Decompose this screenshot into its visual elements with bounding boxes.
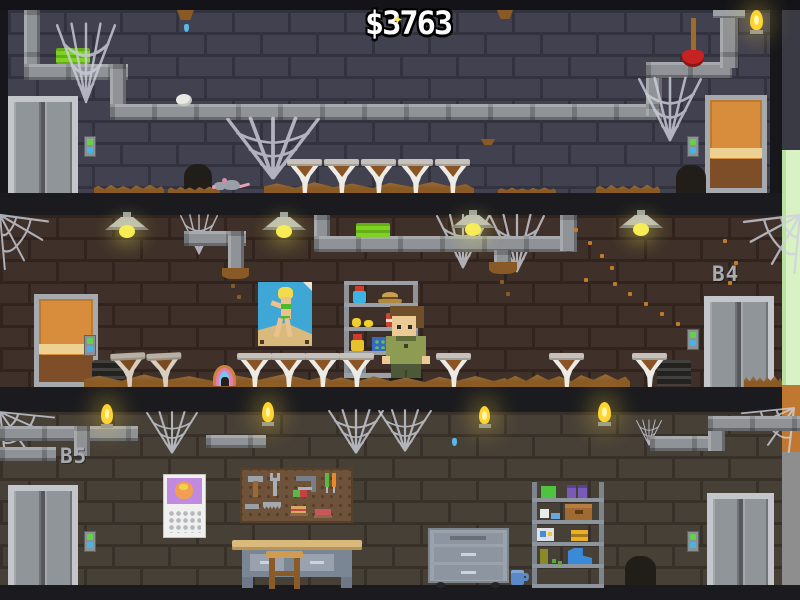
funnel-planter[interactable]: [324, 157, 359, 193]
sawdust-speck: [644, 302, 648, 306]
pipe-vertical: [24, 10, 40, 70]
spider-web: [0, 215, 48, 269]
elevator-door[interactable]: [8, 96, 78, 193]
funnel-planter[interactable]: [339, 351, 374, 387]
door-button[interactable]: [84, 335, 96, 356]
sawdust-speck: [613, 282, 617, 286]
sawdust-speck: [628, 292, 632, 296]
pipe-vertical: [720, 10, 738, 68]
dirt-clump: [177, 10, 194, 20]
floor-label-b4: B4: [712, 262, 739, 286]
spider-web: [744, 215, 800, 273]
elevator-call-button[interactable]: [687, 329, 699, 350]
elevator-call-button[interactable]: [84, 531, 96, 552]
ceiling-lamp: [619, 210, 663, 238]
pipe-horizontal: [708, 416, 800, 431]
sawdust-speck: [600, 254, 604, 258]
dirt-pile: [94, 184, 164, 193]
water-drip: [452, 438, 457, 446]
funnel-planter[interactable]: [271, 351, 306, 387]
floor-label-b5: B5: [60, 444, 87, 468]
debris-speck: [506, 292, 510, 296]
pipe-horizontal: [314, 236, 577, 252]
sawdust-speck: [574, 228, 578, 232]
ceiling-lamp: [451, 210, 495, 238]
funnel-planter[interactable]: [305, 351, 340, 387]
wall-torch-flame: [260, 402, 276, 426]
funnel-planter[interactable]: [632, 351, 667, 387]
spider-web: [328, 410, 384, 454]
rat[interactable]: [212, 176, 250, 193]
dirt-clump: [497, 10, 513, 19]
spider-web: [146, 412, 198, 454]
funnel-planter[interactable]: [287, 157, 322, 193]
water-drip: [184, 24, 189, 32]
wooden-door[interactable]: [705, 95, 767, 193]
elevator-door[interactable]: [704, 296, 774, 387]
funnel-planter[interactable]: [361, 157, 396, 193]
elevator-door[interactable]: [8, 485, 78, 585]
elevator-door[interactable]: [707, 493, 774, 585]
spider-web: [378, 410, 432, 452]
sawdust-speck: [588, 241, 592, 245]
pipe-leak: [222, 268, 249, 279]
spider-web: [56, 24, 116, 104]
funnel-planter-dirty[interactable]: [146, 350, 183, 388]
funnel-planter[interactable]: [549, 351, 584, 387]
funnel-planter[interactable]: [435, 157, 470, 193]
pipe-horizontal: [110, 104, 662, 120]
floor-hole: [625, 556, 656, 585]
mouse-hole: [676, 165, 706, 193]
spider-web: [638, 78, 702, 142]
mug: [511, 570, 529, 585]
dirt-pile: [596, 184, 660, 193]
funnel-planter-dirty[interactable]: [110, 350, 147, 388]
funnel-planter[interactable]: [398, 157, 433, 193]
sawdust-speck: [610, 266, 614, 270]
wall-torch-flame: [596, 402, 613, 426]
elevator-call-button[interactable]: [687, 531, 699, 552]
dirt-clump: [481, 139, 495, 145]
ceiling-lamp: [262, 212, 306, 240]
sawdust-speck: [584, 278, 588, 282]
sawdust-speck: [660, 312, 664, 316]
debris-speck: [237, 295, 241, 299]
pipe-vertical: [560, 215, 577, 251]
spider-egg: [176, 94, 192, 106]
pipe-horizontal: [206, 435, 266, 448]
pipe-vertical: [228, 231, 244, 271]
ceiling-lamp: [105, 212, 149, 240]
pipe-horizontal: [0, 426, 138, 441]
elevator-call-button[interactable]: [84, 136, 96, 157]
green-slime-block[interactable]: [356, 223, 390, 237]
pipe-flange: [713, 10, 745, 18]
debris-speck: [500, 280, 504, 284]
wall-torch-flame: [99, 404, 115, 428]
pipe-horizontal: [0, 447, 56, 461]
debris-speck: [231, 284, 235, 288]
plunger[interactable]: [682, 18, 704, 67]
wall-torch-flame: [748, 10, 765, 34]
door-button[interactable]: [687, 136, 699, 157]
scene-objects-layer: [0, 0, 800, 600]
funnel-planter[interactable]: [237, 351, 272, 387]
sawdust-speck: [723, 239, 727, 243]
game-viewport: B4 B5 $3763: [0, 0, 800, 600]
wall-torch-flame: [477, 406, 492, 428]
money-counter: $3763: [348, 4, 468, 42]
pipe-leak: [489, 262, 517, 274]
funnel-planter[interactable]: [436, 351, 471, 387]
sawdust-speck: [676, 322, 680, 326]
donut[interactable]: [213, 365, 236, 386]
dirt-pile: [498, 187, 556, 193]
